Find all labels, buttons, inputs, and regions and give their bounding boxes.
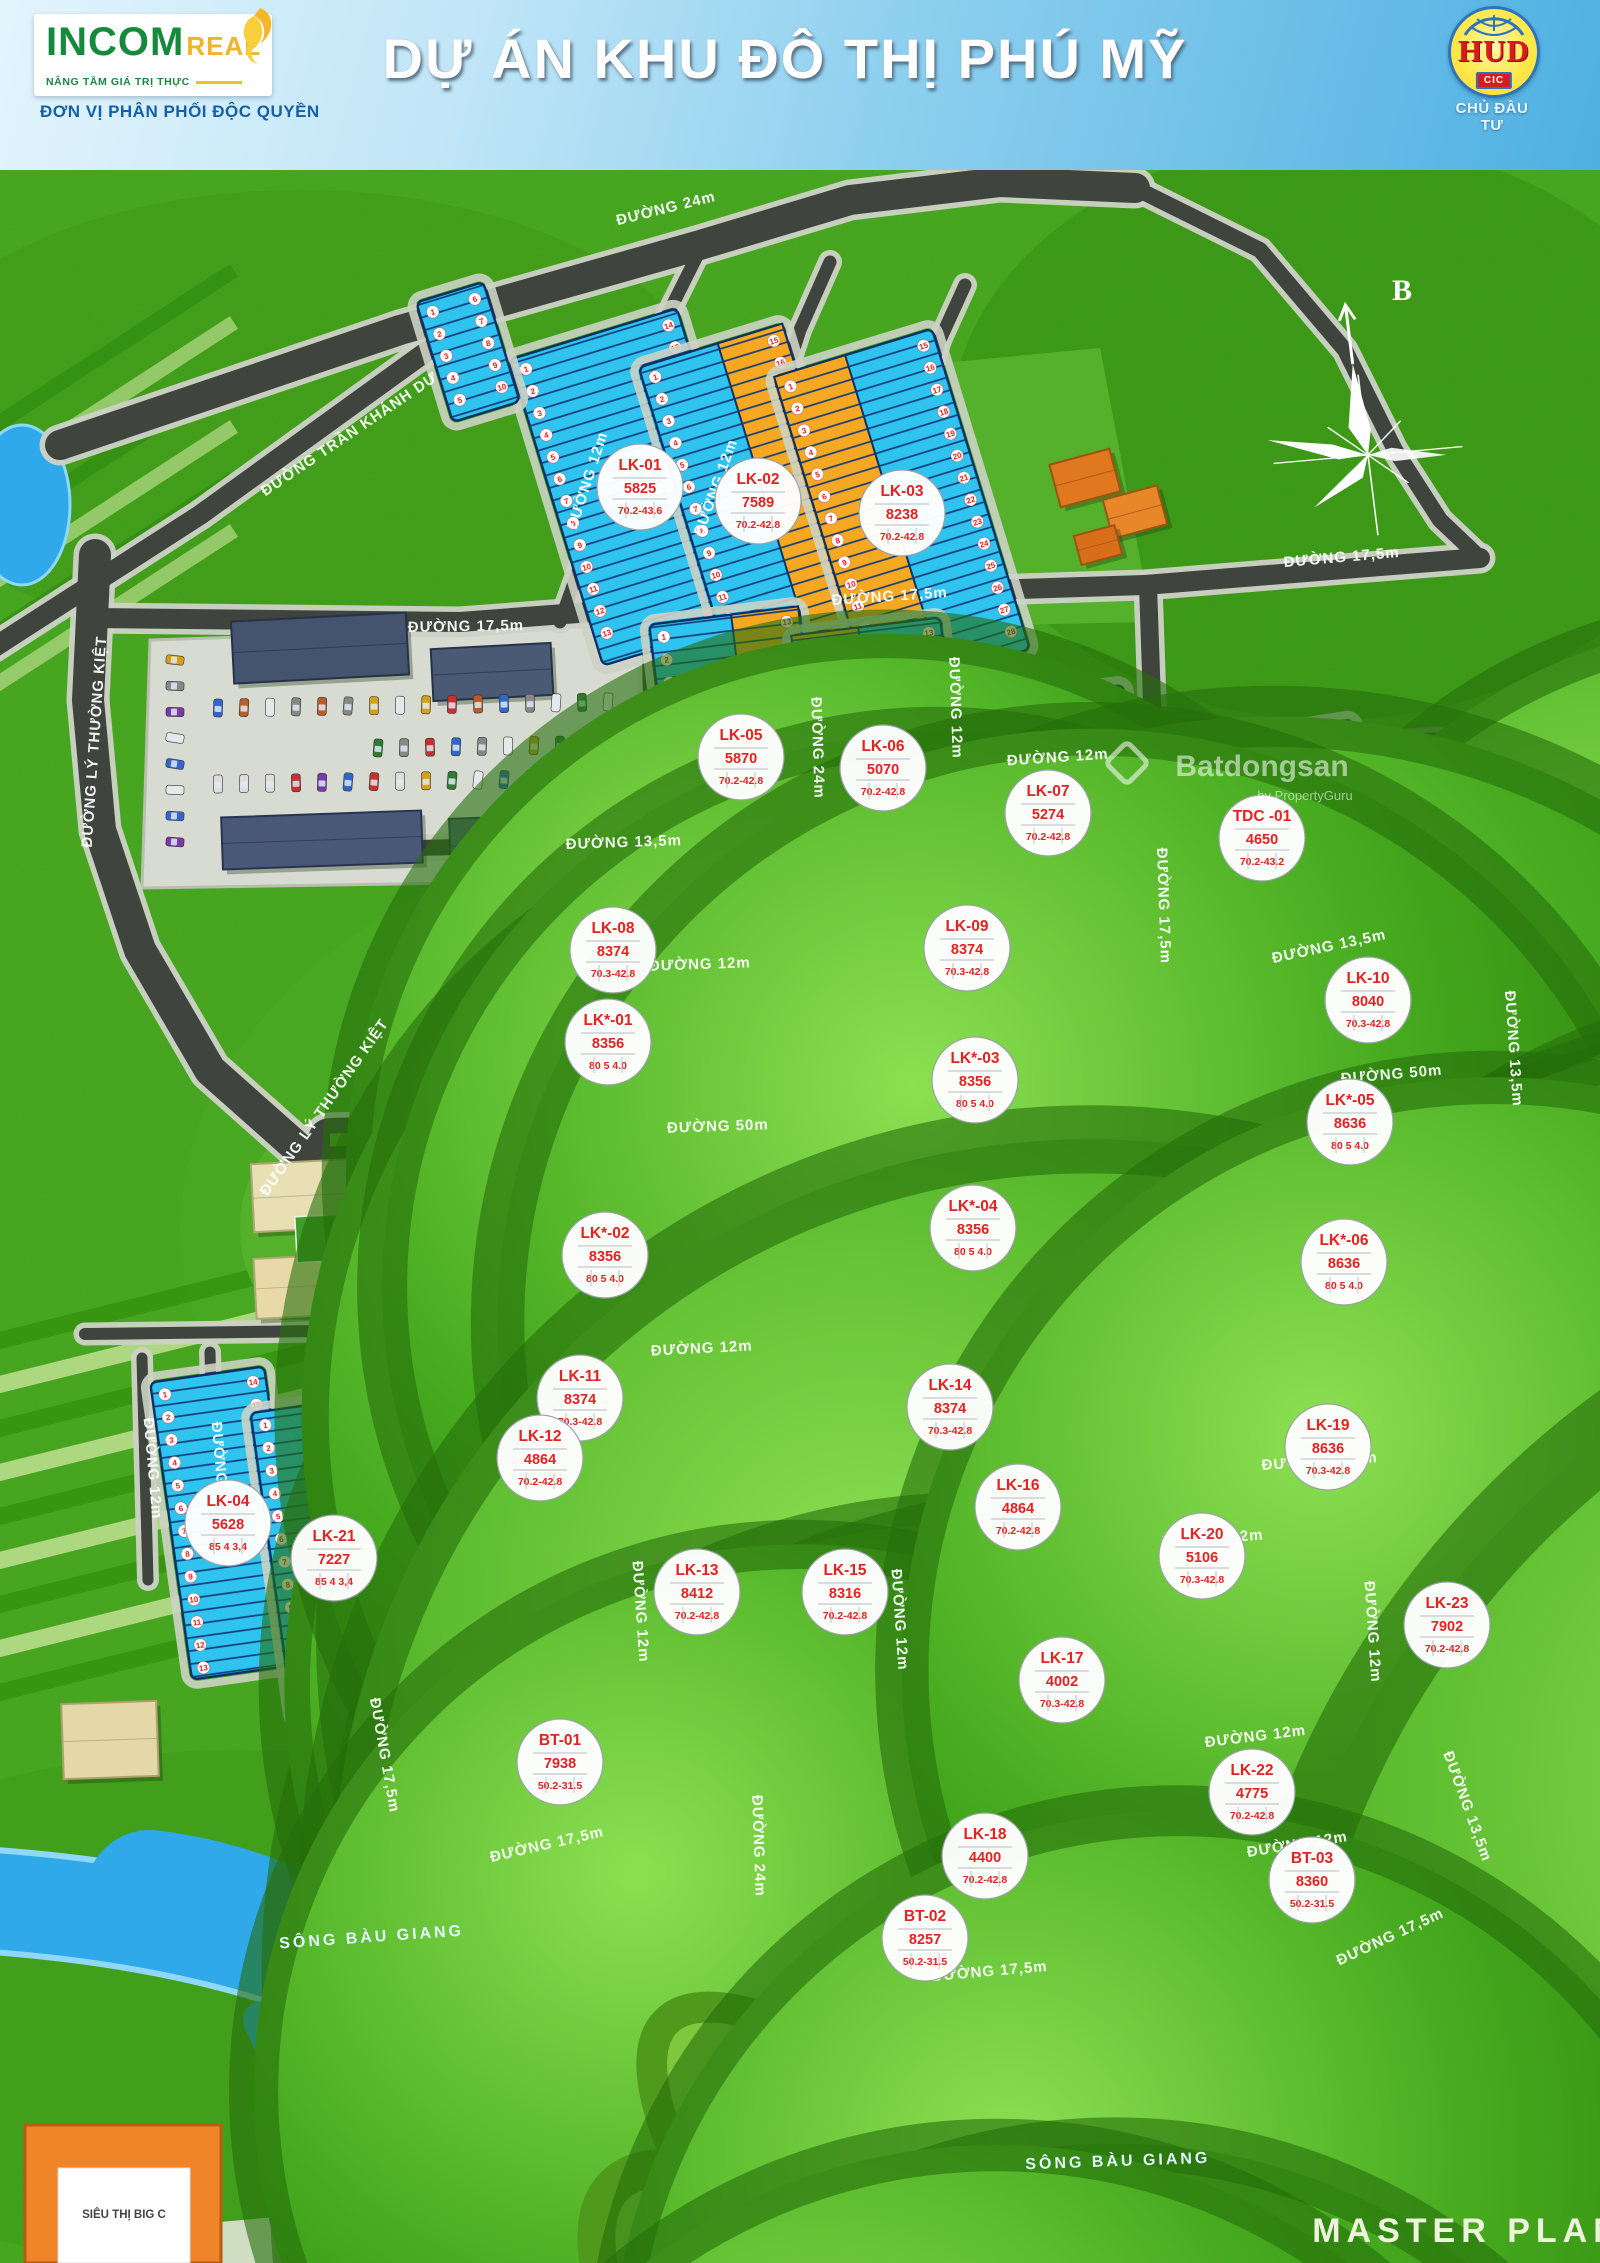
svg-text:LK-18: LK-18 [963, 1826, 1006, 1843]
svg-text:8636: 8636 [1312, 1441, 1344, 1457]
svg-text:70.2-42.8: 70.2-42.8 [861, 786, 906, 798]
svg-text:LK-17: LK-17 [1040, 1650, 1083, 1667]
logo-incom-text: INCOM [46, 20, 184, 64]
svg-text:70.2-43.2: 70.2-43.2 [1240, 856, 1285, 868]
road-label: ĐƯỜNG 12m [649, 953, 751, 975]
svg-text:50.2-31.5: 50.2-31.5 [538, 1780, 583, 1792]
svg-text:80 5 4.0: 80 5 4.0 [956, 1098, 994, 1110]
svg-text:7589: 7589 [742, 495, 774, 511]
svg-text:LK-03: LK-03 [880, 483, 923, 500]
svg-text:LK-05: LK-05 [719, 727, 762, 744]
site-plan-map: SIÊU THỊ BIG C 1234567891011121314151617… [0, 170, 1600, 2263]
block-label-LK-17: LK-17400270.3-42.8 [1019, 1637, 1105, 1723]
block-label-LK-19: LK-19863670.3-42.8 [1285, 1404, 1371, 1490]
logo-tagline: NÂNG TẦM GIÁ TRỊ THỰC [46, 76, 262, 88]
svg-text:8238: 8238 [886, 507, 918, 523]
svg-text:4650: 4650 [1246, 832, 1278, 848]
svg-text:LK-22: LK-22 [1230, 1762, 1273, 1779]
svg-text:LK*-02: LK*-02 [580, 1225, 629, 1242]
svg-text:LK-08: LK-08 [591, 920, 634, 937]
svg-text:5825: 5825 [624, 481, 656, 497]
block-label-LK-03: LK-03823870.2-42.8 [859, 470, 945, 556]
svg-text:LK-15: LK-15 [823, 1562, 866, 1579]
tagline-rule [196, 81, 242, 84]
svg-text:BT-03: BT-03 [1291, 1850, 1334, 1867]
svg-text:7938: 7938 [544, 1756, 576, 1772]
block-label-LK-20: LK-20510670.3-42.8 [1159, 1513, 1245, 1599]
block-label-LK*-03: LK*-03835680 5 4.0 [932, 1037, 1018, 1123]
block-label-LK-06: LK-06507070.2-42.8 [840, 725, 926, 811]
svg-text:LK*-06: LK*-06 [1319, 1232, 1368, 1249]
svg-text:LK-13: LK-13 [675, 1562, 718, 1579]
block-label-BT-02: BT-02825750.2-31.5 [882, 1895, 968, 1981]
svg-text:80 5 4.0: 80 5 4.0 [1331, 1140, 1369, 1152]
incom-real-logo: INCOMREAL NÂNG TẦM GIÁ TRỊ THỰC [34, 14, 272, 96]
distributor-caption: ĐƠN VỊ PHÂN PHỐI ĐỘC QUYỀN [40, 102, 320, 122]
block-label-BT-01: BT-01793850.2-31.5 [517, 1719, 603, 1805]
svg-text:70.2-42.8: 70.2-42.8 [996, 1525, 1041, 1537]
road-label: ĐƯỜNG 24m [748, 1795, 770, 1897]
road-label: ĐƯỜNG 12m [945, 657, 967, 759]
svg-text:8356: 8356 [589, 1249, 621, 1265]
bigc-label: SIÊU THỊ BIG C [82, 2208, 166, 2221]
bird-icon [230, 4, 284, 66]
block-label-LK-15: LK-15831670.2-42.8 [802, 1549, 888, 1635]
svg-text:LK-14: LK-14 [928, 1377, 971, 1394]
svg-text:5870: 5870 [725, 751, 757, 767]
svg-text:80 5 4.0: 80 5 4.0 [1325, 1280, 1363, 1292]
block-label-LK-13: LK-13841270.2-42.8 [654, 1549, 740, 1635]
svg-text:80 5 4.0: 80 5 4.0 [954, 1246, 992, 1258]
svg-text:by PropertyGuru: by PropertyGuru [1257, 788, 1352, 803]
svg-text:LK-04: LK-04 [206, 1493, 249, 1510]
svg-text:80 5 4.0: 80 5 4.0 [589, 1060, 627, 1072]
svg-text:LK*-03: LK*-03 [950, 1050, 999, 1067]
svg-text:LK-02: LK-02 [736, 471, 779, 488]
block-label-LK-04: LK-04562885 4 3,4 [185, 1480, 271, 1566]
svg-text:5628: 5628 [212, 1517, 244, 1533]
block-label-LK-23: LK-23790270.2-42.8 [1404, 1582, 1490, 1668]
svg-text:7902: 7902 [1431, 1619, 1463, 1635]
svg-text:8374: 8374 [564, 1392, 596, 1408]
hud-logo: HUD CIC [1446, 6, 1542, 98]
svg-text:8257: 8257 [909, 1932, 941, 1948]
hud-logo-circle: HUD CIC [1448, 6, 1540, 98]
road-label: ĐƯỜNG 24m [807, 697, 829, 799]
svg-text:13: 13 [198, 1663, 209, 1673]
block-label-TDC -01: TDC -01465070.2-43.2 [1219, 795, 1305, 881]
svg-text:8356: 8356 [957, 1222, 989, 1238]
svg-text:70.2-42.8: 70.2-42.8 [518, 1476, 563, 1488]
svg-text:LK-19: LK-19 [1306, 1417, 1349, 1434]
svg-text:14: 14 [248, 1377, 259, 1387]
svg-text:70.2-42.8: 70.2-42.8 [963, 1874, 1008, 1886]
svg-text:8412: 8412 [681, 1586, 713, 1602]
svg-text:85 4 3,4: 85 4 3,4 [315, 1576, 353, 1588]
svg-text:8636: 8636 [1334, 1116, 1366, 1132]
svg-text:8356: 8356 [959, 1074, 991, 1090]
developer-caption: CHỦ ĐẦU TƯ [1444, 100, 1540, 134]
svg-text:LK-06: LK-06 [861, 738, 904, 755]
block-label-LK-08: LK-08837470.3-42.8 [570, 907, 656, 993]
svg-text:Batdongsan: Batdongsan [1175, 750, 1348, 783]
svg-text:4775: 4775 [1236, 1786, 1268, 1802]
svg-text:70.3-42.8: 70.3-42.8 [591, 968, 636, 980]
block-label-BT-03: BT-03836050.2-31.5 [1269, 1837, 1355, 1923]
hud-wordmark: HUD [1451, 33, 1537, 69]
svg-text:70.2-42.8: 70.2-42.8 [736, 519, 781, 531]
svg-text:LK-16: LK-16 [996, 1477, 1039, 1494]
poster-header: INCOMREAL NÂNG TẦM GIÁ TRỊ THỰC ĐƠN VỊ P… [0, 0, 1600, 170]
compass-north-label: B [1392, 274, 1412, 307]
block-label-LK-02: LK-02758970.2-42.8 [715, 458, 801, 544]
svg-text:4864: 4864 [524, 1452, 556, 1468]
svg-text:5274: 5274 [1032, 807, 1064, 823]
svg-text:LK-12: LK-12 [518, 1428, 561, 1445]
svg-text:LK-23: LK-23 [1425, 1595, 1468, 1612]
svg-text:4400: 4400 [969, 1850, 1001, 1866]
block-label-LK-01: LK-01582570.2-43.6 [597, 444, 683, 530]
svg-text:70.2-42.8: 70.2-42.8 [675, 1610, 720, 1622]
svg-text:70.3-42.8: 70.3-42.8 [1180, 1574, 1225, 1586]
svg-text:8040: 8040 [1352, 994, 1384, 1010]
svg-text:70.3-42.8: 70.3-42.8 [928, 1425, 973, 1437]
svg-text:70.2-42.8: 70.2-42.8 [1230, 1810, 1275, 1822]
svg-text:70.2-42.8: 70.2-42.8 [823, 1610, 868, 1622]
block-label-LK-14: LK-14837470.3-42.8 [907, 1364, 993, 1450]
svg-text:LK-09: LK-09 [945, 918, 988, 935]
svg-text:LK-10: LK-10 [1346, 970, 1389, 987]
svg-text:70.3-42.8: 70.3-42.8 [945, 966, 990, 978]
svg-text:LK-20: LK-20 [1180, 1526, 1223, 1543]
svg-text:70.2-42.8: 70.2-42.8 [880, 531, 925, 543]
block-label-LK-18: LK-18440070.2-42.8 [942, 1813, 1028, 1899]
svg-text:4002: 4002 [1046, 1674, 1078, 1690]
block-label-LK-07: LK-07527470.2-42.8 [1005, 770, 1091, 856]
svg-text:12: 12 [195, 1640, 206, 1650]
svg-text:LK*-01: LK*-01 [583, 1012, 632, 1029]
block-label-LK-21: LK-21722785 4 3,4 [291, 1515, 377, 1601]
svg-text:LK-01: LK-01 [618, 457, 661, 474]
master-plan-label: MASTER PLAN [1312, 2212, 1600, 2250]
svg-text:8316: 8316 [829, 1586, 861, 1602]
svg-text:70.3-42.8: 70.3-42.8 [1346, 1018, 1391, 1030]
master-plan-poster: INCOMREAL NÂNG TẦM GIÁ TRỊ THỰC ĐƠN VỊ P… [0, 0, 1600, 2263]
block-label-LK-10: LK-10804070.3-42.8 [1325, 957, 1411, 1043]
cic-badge: CIC [1476, 72, 1512, 89]
svg-text:8636: 8636 [1328, 1256, 1360, 1272]
block-label-LK-22: LK-22477570.2-42.8 [1209, 1749, 1295, 1835]
svg-text:8360: 8360 [1296, 1874, 1328, 1890]
svg-text:70.2-42.8: 70.2-42.8 [1425, 1643, 1470, 1655]
svg-text:8374: 8374 [951, 942, 983, 958]
block-label-LK*-01: LK*-01835680 5 4.0 [565, 999, 651, 1085]
svg-text:70.2-42.8: 70.2-42.8 [719, 775, 764, 787]
svg-text:70.2-43.6: 70.2-43.6 [618, 505, 663, 517]
project-title: DỰ ÁN KHU ĐÔ THỊ PHÚ MỸ [300, 26, 1270, 91]
svg-text:5106: 5106 [1186, 1550, 1218, 1566]
road-label: ĐƯỜNG 50m [667, 1115, 769, 1137]
svg-text:70.2-42.8: 70.2-42.8 [1026, 831, 1071, 843]
block-label-LK*-06: LK*-06863680 5 4.0 [1301, 1219, 1387, 1305]
svg-text:70.3-42.8: 70.3-42.8 [1306, 1465, 1351, 1477]
svg-text:5070: 5070 [867, 762, 899, 778]
svg-text:10: 10 [189, 1595, 200, 1605]
svg-text:BT-02: BT-02 [904, 1908, 946, 1925]
svg-text:8356: 8356 [592, 1036, 624, 1052]
svg-text:50.2-31.5: 50.2-31.5 [903, 1956, 948, 1968]
svg-text:8374: 8374 [597, 944, 629, 960]
block-label-LK-09: LK-09837470.3-42.8 [924, 905, 1010, 991]
block-label-LK*-02: LK*-02835680 5 4.0 [562, 1212, 648, 1298]
svg-text:4864: 4864 [1002, 1501, 1034, 1517]
block-label-LK-12: LK-12486470.2-42.8 [497, 1415, 583, 1501]
svg-text:LK-11: LK-11 [559, 1368, 602, 1385]
svg-text:TDC -01: TDC -01 [1233, 808, 1292, 825]
road-label: ĐƯỜNG 17,5m [408, 616, 525, 636]
svg-text:8374: 8374 [934, 1401, 966, 1417]
block-label-LK*-05: LK*-05863680 5 4.0 [1307, 1079, 1393, 1165]
svg-text:7227: 7227 [318, 1552, 350, 1568]
svg-text:80 5 4.0: 80 5 4.0 [586, 1273, 624, 1285]
svg-text:85 4 3,4: 85 4 3,4 [209, 1541, 247, 1553]
svg-text:50.2-31.5: 50.2-31.5 [1290, 1898, 1335, 1910]
svg-text:BT-01: BT-01 [539, 1732, 582, 1749]
svg-text:LK*-05: LK*-05 [1325, 1092, 1374, 1109]
svg-text:LK-07: LK-07 [1026, 783, 1069, 800]
svg-text:LK-21: LK-21 [312, 1528, 355, 1545]
block-label-LK*-04: LK*-04835680 5 4.0 [930, 1185, 1016, 1271]
svg-text:LK*-04: LK*-04 [948, 1198, 997, 1215]
svg-text:70.3-42.8: 70.3-42.8 [1040, 1698, 1085, 1710]
block-label-LK-16: LK-16486470.2-42.8 [975, 1464, 1061, 1550]
block-label-LK-05: LK-05587070.2-42.8 [698, 714, 784, 800]
